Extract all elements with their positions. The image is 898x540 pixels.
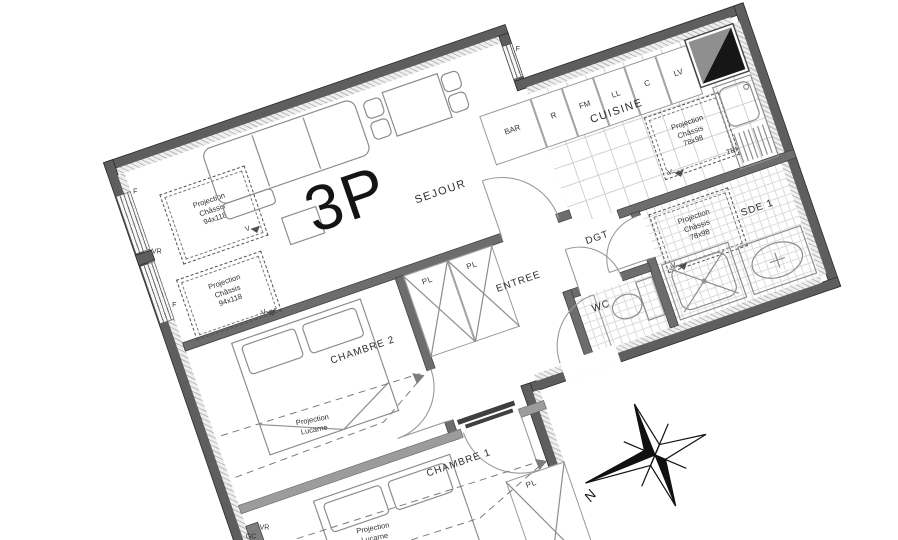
compass-rose: N (580, 385, 750, 535)
marker-gc: GC (246, 534, 257, 540)
faucet (743, 84, 749, 90)
window-marker-f2: F (172, 302, 176, 309)
apartment-plan: BAR R FM LL C LV Projection Châssis 94x1… (104, 0, 898, 540)
window-marker-f3: F (516, 46, 520, 53)
compass-north-label: N (580, 486, 599, 505)
dining-table (382, 74, 452, 136)
window-marker-f1: F (133, 188, 137, 195)
plan-linework (104, 0, 898, 540)
v-arrows (239, 89, 715, 403)
door-rails (457, 401, 517, 431)
sofa-chaise (222, 188, 276, 220)
chair (370, 118, 393, 141)
chair (447, 91, 470, 114)
shutter-marker-vr1: VR (152, 249, 162, 256)
floorplan-stage: BAR R FM LL C LV Projection Châssis 94x1… (0, 0, 898, 540)
chair (362, 97, 385, 120)
chair (440, 70, 463, 93)
pillow (241, 328, 304, 375)
shutter-marker-vr2: VR (260, 525, 270, 532)
